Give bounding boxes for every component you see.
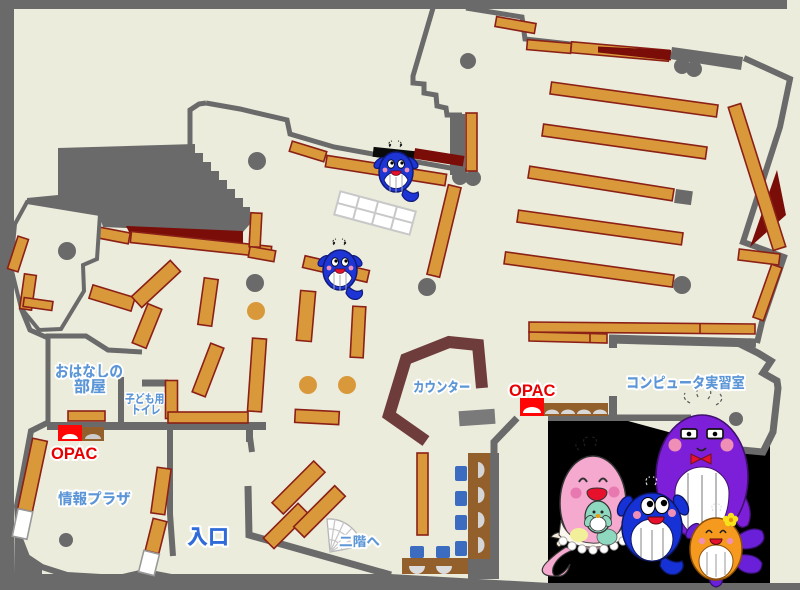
svg-text:OPAC: OPAC — [51, 445, 98, 463]
svg-text:OPAC: OPAC — [509, 382, 556, 400]
